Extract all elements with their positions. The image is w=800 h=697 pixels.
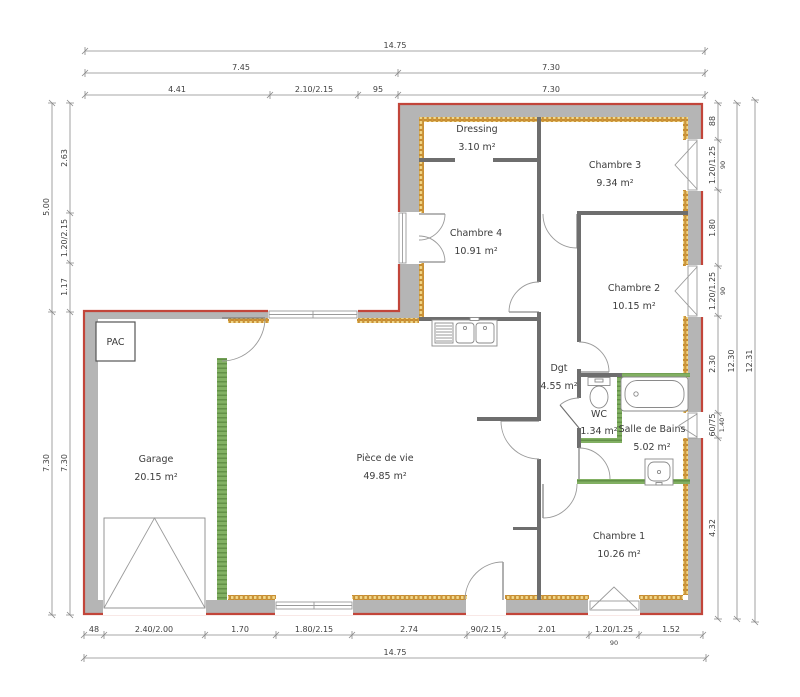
room-name: Chambre 1 [593,531,645,542]
dim-label: 1.20/1.25 [708,272,717,310]
room-area: 5.02 m² [633,442,670,453]
dim-label: 7.30 [542,63,560,72]
pac-unit: PAC [96,322,135,361]
door-living-hall [501,421,539,459]
room-area: 20.15 m² [134,472,177,483]
dim-label: 2.10/2.15 [295,85,333,94]
room-name: Chambre 4 [450,228,502,239]
dim-label: 1.80 [708,219,717,237]
room-name: WC [591,409,607,420]
room-label-chambre3: Chambre 3 9.34 m² [589,160,641,189]
room-label-chambre2: Chambre 2 10.15 m² [608,283,660,312]
room-label-wc: WC 1.34 m² [580,409,617,437]
dim-label: 1.20/1.25 [595,625,633,634]
dim-label: 7.30 [60,454,69,472]
door-wc [560,398,579,428]
room-name: Dressing [456,124,497,135]
dim-label: 90 [719,161,727,169]
dim-label: 2.74 [400,625,418,634]
washbasin-icon [645,459,673,485]
room-label-chambre4: Chambre 4 10.91 m² [450,228,502,257]
room-name: Garage [139,454,174,465]
dim-label: 4.41 [168,85,186,94]
dim-label: 2.40/2.00 [135,625,173,634]
room-area: 49.85 m² [363,471,406,482]
dim-label: 1.17 [60,278,69,296]
bathtub-icon [621,377,688,411]
pac-label: PAC [106,337,124,348]
dim-label: 95 [373,85,383,94]
insulation-strips [228,117,688,600]
dim-label: 7.30 [42,454,51,472]
bath-top-wall [622,373,690,377]
room-label-dgt: Dgt 4.55 m² [540,363,577,392]
dim-label: 60/75 [708,413,717,436]
wc-bottom-wall [577,438,622,443]
interior-walls [419,117,688,600]
dim-label: 2.30 [708,355,717,373]
dim-label: 90/2.15 [471,625,502,634]
room-name: Pièce de vie [356,453,413,464]
dimensions-right: 88 1.20/1.25 90 1.80 1.20/1.25 90 2.30 6… [708,97,759,625]
room-label-garage: Garage 20.15 m² [134,454,177,483]
door-garage-living [222,318,265,361]
dim-label: 12.30 [727,350,736,373]
kitchen-sink-icon [432,318,497,347]
room-label-piece-de-vie: Pièce de vie 49.85 m² [356,453,413,482]
room-name: Chambre 3 [589,160,641,171]
room-area: 10.26 m² [597,549,640,560]
dim-label: 48 [89,625,99,634]
door-salle-de-bains [579,448,610,479]
dim-label: 1.20/2.15 [60,219,69,257]
floor-plan-page: PAC Dressing 3.10 m² Chambre 3 9.34 m² C… [0,0,800,697]
dimensions-top: 14.75 7.45 7.30 4.41 2.10/2.15 95 7.30 [82,41,708,99]
dim-label: 1.52 [662,625,680,634]
room-name: Dgt [550,363,567,374]
dim-label: 7.45 [232,63,250,72]
door-chambre1 [543,484,577,518]
dim-label: 2.01 [538,625,556,634]
dim-label: 2.63 [60,149,69,167]
dim-label: 12.31 [745,350,754,373]
green-partition-walls [217,358,690,600]
dim-label: 88 [708,116,717,126]
toilet-icon [588,378,610,409]
dim-label: 1.80/2.15 [295,625,333,634]
dim-label: 90 [719,287,727,295]
room-area: 4.55 m² [540,381,577,392]
dim-label: 14.75 [384,648,407,657]
room-name: Salle de Bains [619,424,686,435]
dim-label: 14.75 [384,41,407,50]
room-label-chambre1: Chambre 1 10.26 m² [593,531,645,560]
room-name: Chambre 2 [608,283,660,294]
room-area: 1.34 m² [580,426,617,437]
room-label-salle-de-bains: Salle de Bains 5.02 m² [619,424,686,453]
dim-label: 4.32 [708,519,717,537]
french-window-chambre4 [399,213,445,263]
floor-plan-svg: PAC Dressing 3.10 m² Chambre 3 9.34 m² C… [0,0,800,697]
dimensions-left: 5.00 7.30 2.63 1.20/2.15 1.17 7.30 [42,100,74,618]
dim-label: 1.70 [231,625,249,634]
door-chambre4 [509,282,539,312]
dim-label: 1.40 [718,418,726,432]
dim-label: 5.00 [42,198,51,216]
room-area: 10.91 m² [454,246,497,257]
door-chambre3 [543,214,577,248]
dim-label: 90 [610,639,618,647]
entry-door [465,562,503,600]
dimensions-bottom: 48 2.40/2.00 1.70 1.80/2.15 2.74 90/2.15… [81,625,709,662]
room-area: 10.15 m² [612,301,655,312]
room-area: 9.34 m² [596,178,633,189]
garage-door-icon [104,518,205,608]
garage-partition-wall [217,358,227,600]
door-chambre2 [579,342,609,372]
dim-label: 7.30 [542,85,560,94]
room-area: 3.10 m² [458,142,495,153]
room-label-dressing: Dressing 3.10 m² [456,124,497,153]
dim-label: 1.20/1.25 [708,146,717,184]
